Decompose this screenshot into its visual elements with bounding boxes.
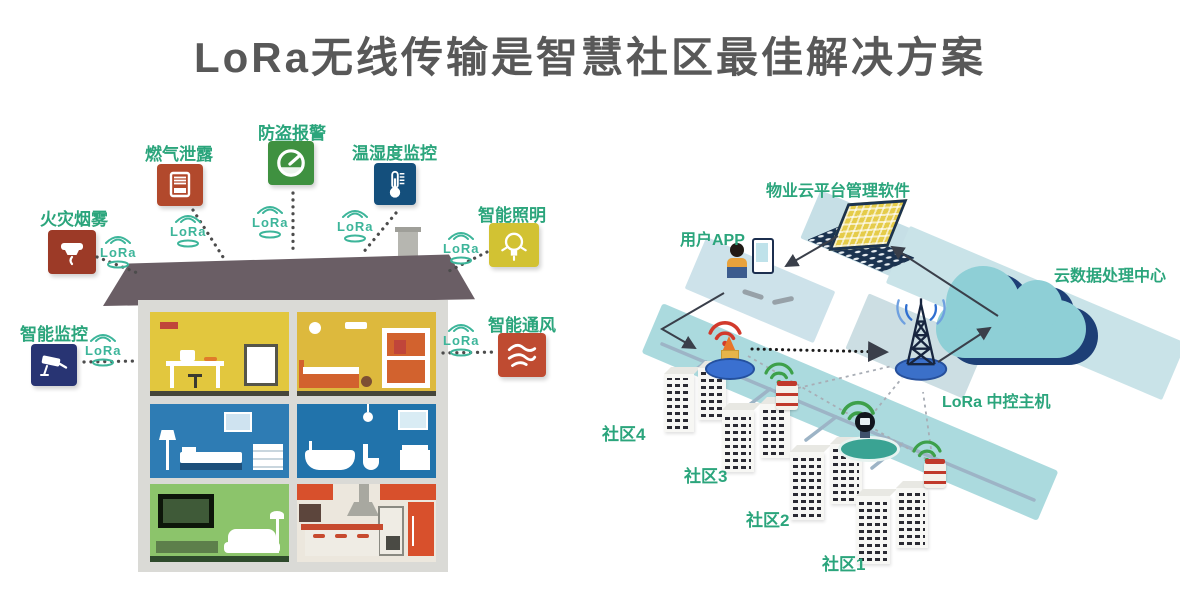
bed-mattress [303, 367, 359, 374]
label-community-4: 社区4 [602, 420, 645, 445]
lora-ellipse-icon [90, 358, 116, 367]
building [760, 404, 790, 458]
bed-mattress [180, 452, 242, 463]
air-conditioner [345, 322, 367, 329]
cctv-camera-icon [37, 349, 71, 381]
desk-leg [170, 366, 174, 388]
sensor-label-smart-lighting: 智能照明 [478, 201, 546, 226]
floor-lamp-shade [159, 430, 176, 440]
sensor-label-fire-smoke: 火灾烟雾 [40, 205, 108, 230]
building-windows [793, 456, 821, 517]
house-body [138, 300, 448, 572]
sensor-icon-smart-monitoring [31, 344, 77, 386]
floor-lamp-pole [166, 438, 169, 470]
floor-lamp-pole [276, 517, 279, 553]
canister-cap [777, 381, 797, 386]
lora-signal-badge: LoRa [100, 233, 137, 269]
canister-band [924, 471, 946, 474]
thermometer-icon [380, 168, 410, 200]
floor [297, 391, 436, 396]
picture-frame [224, 412, 252, 432]
building [896, 488, 928, 548]
smartphone-screen [756, 243, 768, 262]
room-kitchen [297, 484, 436, 562]
alarm-gauge-icon [274, 146, 308, 180]
lora-wave-icon [444, 229, 478, 241]
building-windows [667, 378, 691, 429]
infographic-canvas: LoRa无线传输是智慧社区最佳解决方案 [0, 0, 1180, 600]
smoke-detector-icon [56, 236, 88, 268]
room-bedroom [150, 404, 289, 478]
sensor-icon-smart-ventilation [498, 333, 546, 377]
sensor-label-smart-monitoring: 智能监控 [20, 320, 88, 345]
floor [150, 556, 289, 562]
dresser [253, 444, 283, 470]
label-cloud-center: 云数据处理中心 [1054, 262, 1166, 286]
building-windows [763, 408, 787, 455]
bathtub-faucet [309, 441, 312, 450]
lora-signal-badge: LoRa [170, 212, 207, 248]
lora-signal-badge: LoRa [337, 207, 374, 243]
device-base [838, 436, 900, 462]
sensor-label-gas-leak: 燃气泄露 [145, 140, 213, 165]
lora-ellipse-icon [175, 239, 201, 248]
wall-shelf [299, 504, 321, 522]
bed-base [303, 374, 359, 388]
upper-cabinet-right [380, 484, 436, 500]
lora-signal-badge: LoRa [85, 331, 122, 367]
room-bathroom [297, 404, 436, 478]
lora-ellipse-icon [342, 234, 368, 243]
sofa-seat [224, 542, 280, 553]
bathtub [305, 450, 355, 470]
toilet-bowl [363, 458, 379, 470]
lora-wave-icon [444, 321, 478, 333]
label-property-software: 物业云平台管理软件 [766, 177, 910, 201]
lora-badge-label: LoRa [85, 344, 122, 357]
canister-band [776, 393, 798, 396]
stool [357, 534, 369, 538]
label-lora-host: LoRa 中控主机 [942, 388, 1050, 412]
chair-seat [188, 374, 202, 377]
label-community-2: 社区2 [746, 506, 789, 531]
sensor-label-temp-humidity: 温湿度监控 [352, 139, 437, 164]
wind-icon [505, 338, 539, 372]
cloud-data-center-icon [936, 300, 1086, 358]
house-roof [103, 250, 475, 306]
sensor-canister [776, 384, 798, 410]
device-base [705, 358, 755, 380]
lora-signal-badge: LoRa [443, 229, 480, 265]
bed-base [180, 463, 242, 470]
page-title: LoRa无线传输是智慧社区最佳解决方案 [0, 24, 1180, 85]
label-community-1: 社区1 [822, 550, 865, 575]
sink-cabinet [400, 450, 430, 470]
hood-pipe [359, 484, 369, 502]
lora-ellipse-icon [448, 348, 474, 357]
stool [335, 534, 347, 538]
sensor-icon-smart-lighting [489, 223, 539, 267]
toilet-tank [363, 444, 368, 459]
oven-door [386, 536, 400, 550]
lora-badge-label: LoRa [170, 225, 207, 238]
building-windows [899, 492, 925, 545]
lora-badge-label: LoRa [337, 220, 374, 233]
camera-face [860, 418, 870, 425]
lora-badge-label: LoRa [443, 242, 480, 255]
tv-screen [163, 499, 209, 523]
range-hood [347, 502, 379, 516]
building-windows [725, 414, 751, 469]
fridge-handle [412, 516, 414, 546]
computer-monitor [180, 350, 195, 361]
lora-badge-label: LoRa [443, 334, 480, 347]
cabinet [244, 344, 278, 386]
lora-ellipse-icon [448, 256, 474, 265]
lora-wave-icon [101, 233, 135, 245]
sensor-icon-burglar-alarm [268, 141, 314, 185]
canister-cap [925, 459, 945, 464]
sensor-icon-fire-smoke [48, 230, 96, 274]
canister-band [924, 481, 946, 484]
lora-signal-badge: LoRa [443, 321, 480, 357]
sensor-label-burglar-alarm: 防盗报警 [258, 119, 326, 144]
light-bulb-icon [497, 228, 531, 262]
lora-wave-icon [171, 212, 205, 224]
books [394, 340, 406, 354]
pendant-cord [367, 404, 369, 412]
ceiling-lamp [309, 322, 321, 334]
canister-band [776, 403, 798, 406]
lora-wave-icon [253, 203, 287, 215]
room-office [150, 312, 289, 396]
user-body [727, 258, 747, 278]
lora-wave-icon [338, 207, 372, 219]
sensor-canister [924, 462, 946, 488]
lora-badge-label: LoRa [252, 216, 289, 229]
desk-leg [216, 366, 220, 388]
lora-badge-label: LoRa [100, 246, 137, 259]
camera-sphere [855, 412, 875, 432]
stool [313, 534, 325, 538]
desk-lamp [204, 357, 217, 361]
sensor-label-smart-ventilation: 智能通风 [488, 311, 556, 336]
floor [150, 391, 289, 396]
lora-ellipse-icon [257, 230, 283, 239]
building [664, 374, 694, 432]
sensor-icon-gas-leak [157, 164, 203, 206]
upper-cabinet-left [297, 484, 333, 500]
floor-lamp-head [270, 511, 284, 519]
lora-signal-badge: LoRa [252, 203, 289, 239]
room-kids-bedroom [297, 312, 436, 396]
sensor-icon-temp-humidity [374, 163, 416, 205]
lora-ellipse-icon [105, 260, 131, 269]
mirror [398, 410, 428, 430]
building [790, 452, 824, 520]
label-community-3: 社区3 [684, 462, 727, 487]
tv-board [156, 541, 218, 553]
room-living [150, 484, 289, 562]
pendant-lamp [363, 412, 373, 422]
teddy-bear [361, 376, 372, 387]
label-user-app: 用户APP [680, 226, 745, 250]
lora-wave-icon [86, 331, 120, 343]
shelf-books [160, 322, 178, 329]
bookshelf-shelf [387, 356, 425, 360]
gas-detector-icon [164, 169, 196, 201]
lora-tower-icon [890, 298, 952, 382]
